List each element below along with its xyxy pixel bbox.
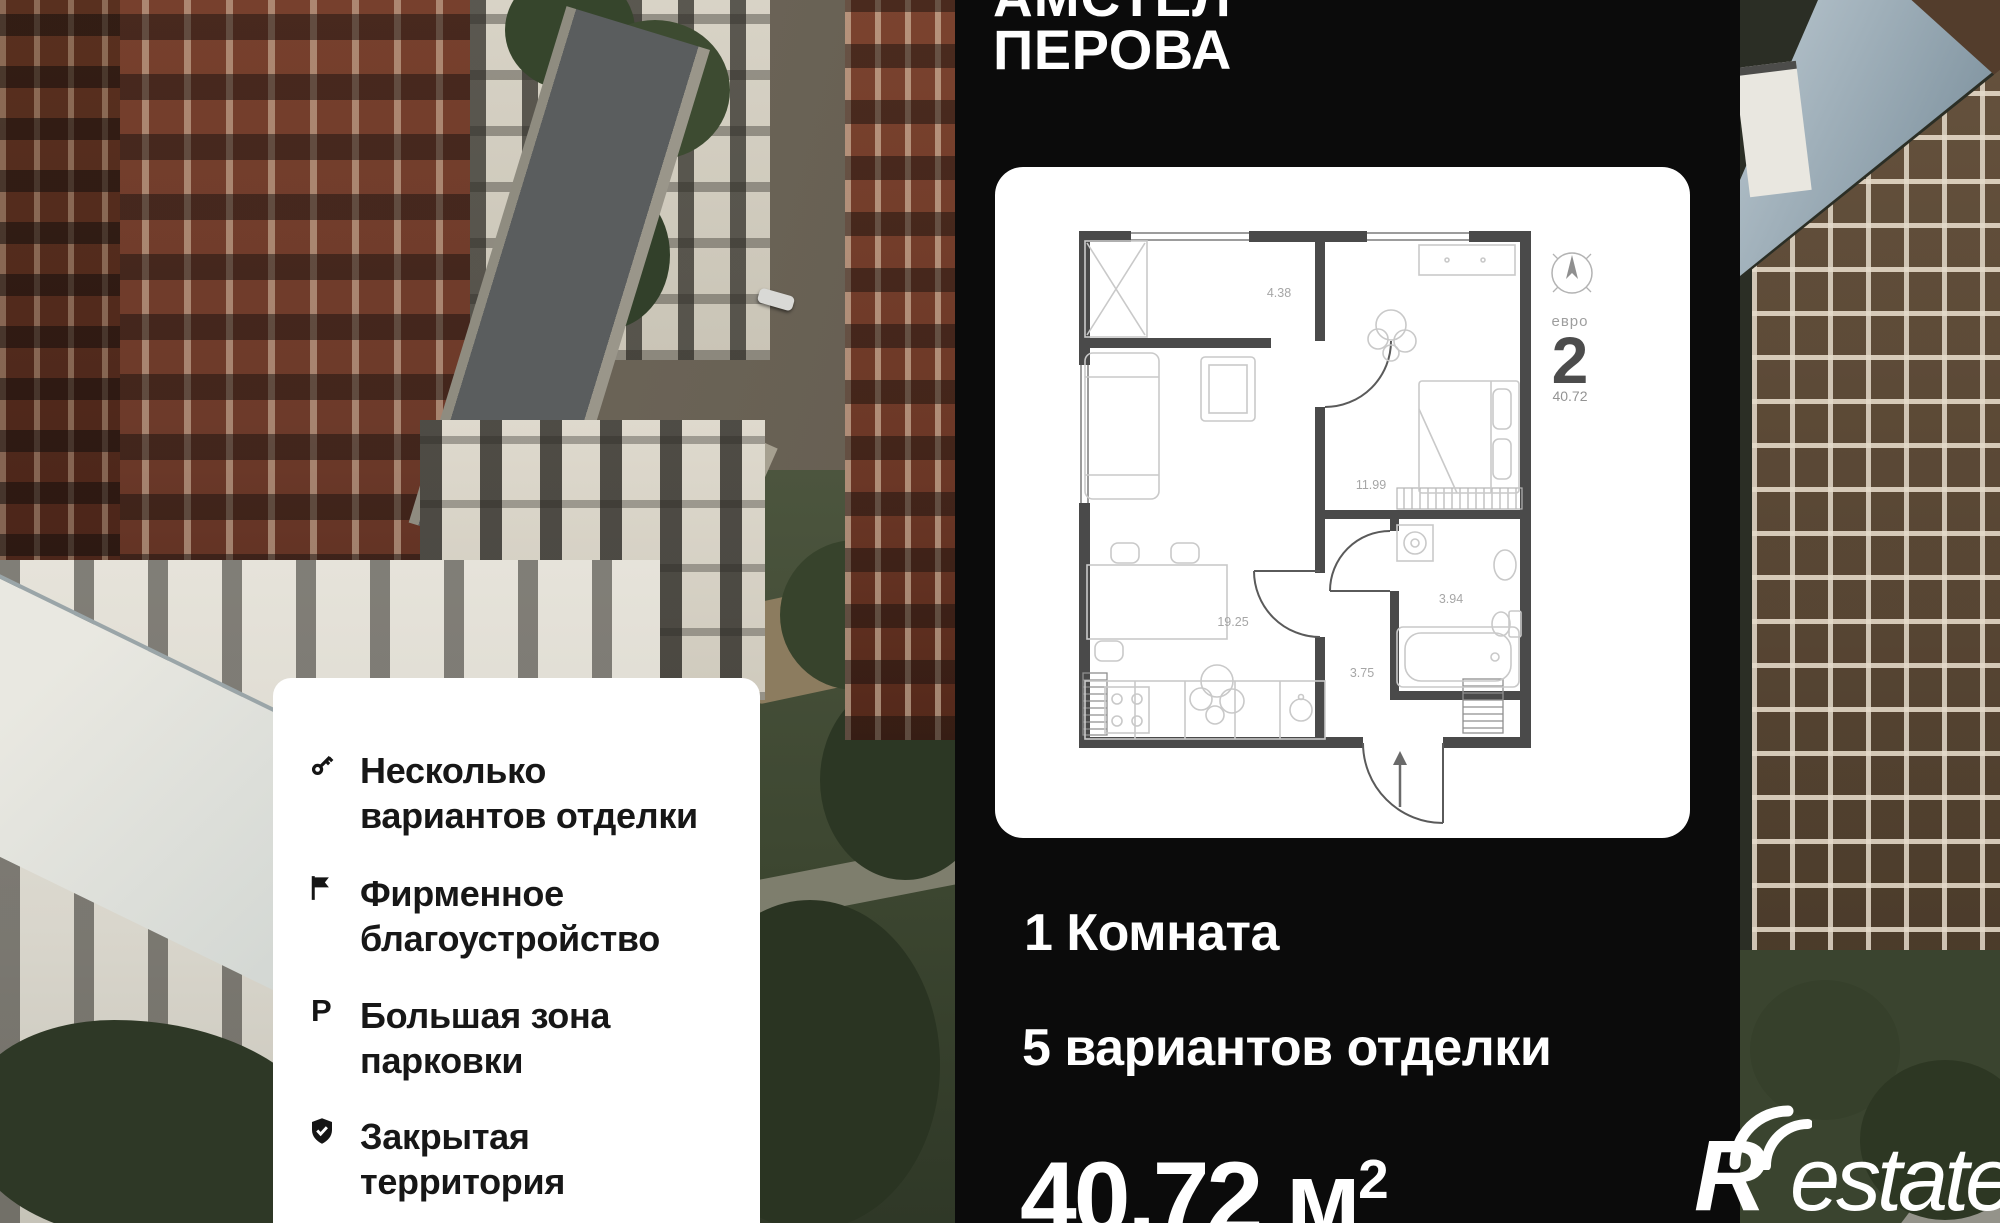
unit-type-area: 40.72	[1552, 388, 1587, 404]
feature-line1: Закрытая	[360, 1114, 565, 1159]
compass-icon	[1552, 253, 1592, 293]
key-icon	[307, 750, 341, 784]
restate-logo-r: R	[1694, 1126, 1766, 1223]
feature-line1: Фирменное	[360, 871, 660, 916]
unit-type-number: 2	[1552, 323, 1589, 397]
feature-line2: вариантов отделки	[360, 793, 698, 838]
total-area-superscript: 2	[1358, 1148, 1389, 1210]
area-balcony: 4.38	[1267, 286, 1291, 300]
total-area-value: 40.72	[1020, 1141, 1260, 1223]
area-living: 19.25	[1217, 615, 1248, 629]
area-bathroom: 3.94	[1439, 592, 1463, 606]
feature-line2: территория	[360, 1159, 565, 1204]
flag-icon	[307, 873, 341, 907]
project-name-line2: ПЕРОВА	[993, 22, 1232, 78]
area-bedroom: 11.99	[1356, 478, 1386, 492]
floorplan-drawing: 4.38 11.99 19.25 3.94 3.75 евро 2 40.72	[995, 167, 1690, 838]
feature-line2: парковки	[360, 1038, 610, 1083]
parking-icon: P	[311, 993, 332, 1029]
entrance-arrow	[1393, 751, 1407, 807]
doors	[1254, 341, 1443, 823]
finish-options-line: 5 вариантов отделки	[1022, 1018, 1551, 1078]
restate-watermark: R estate	[1694, 1096, 2000, 1223]
total-area-unit: м	[1286, 1141, 1358, 1223]
features-card: Несколько вариантов отделки Фирменное бл…	[273, 678, 760, 1223]
shield-check-icon	[307, 1116, 341, 1150]
total-area-line: 40.72 м2	[1020, 1140, 1389, 1223]
ad-creative: АМСТЕЛ ПЕРОВА	[0, 0, 2000, 1223]
feature-line1: Несколько	[360, 748, 698, 793]
floorplan-card: 4.38 11.99 19.25 3.94 3.75 евро 2 40.72	[995, 167, 1690, 838]
feature-line1: Большая зона	[360, 993, 610, 1038]
windows	[1076, 228, 1469, 503]
wardrobe-hatch	[1397, 488, 1522, 509]
photo-brick-tower-center	[845, 0, 957, 740]
restate-logo-text: estate	[1790, 1135, 2000, 1223]
furniture	[1085, 241, 1521, 739]
area-hallway: 3.75	[1350, 666, 1374, 680]
rooms-count-line: 1 Комната	[1024, 903, 1279, 963]
feature-line2: благоустройство	[360, 916, 660, 961]
